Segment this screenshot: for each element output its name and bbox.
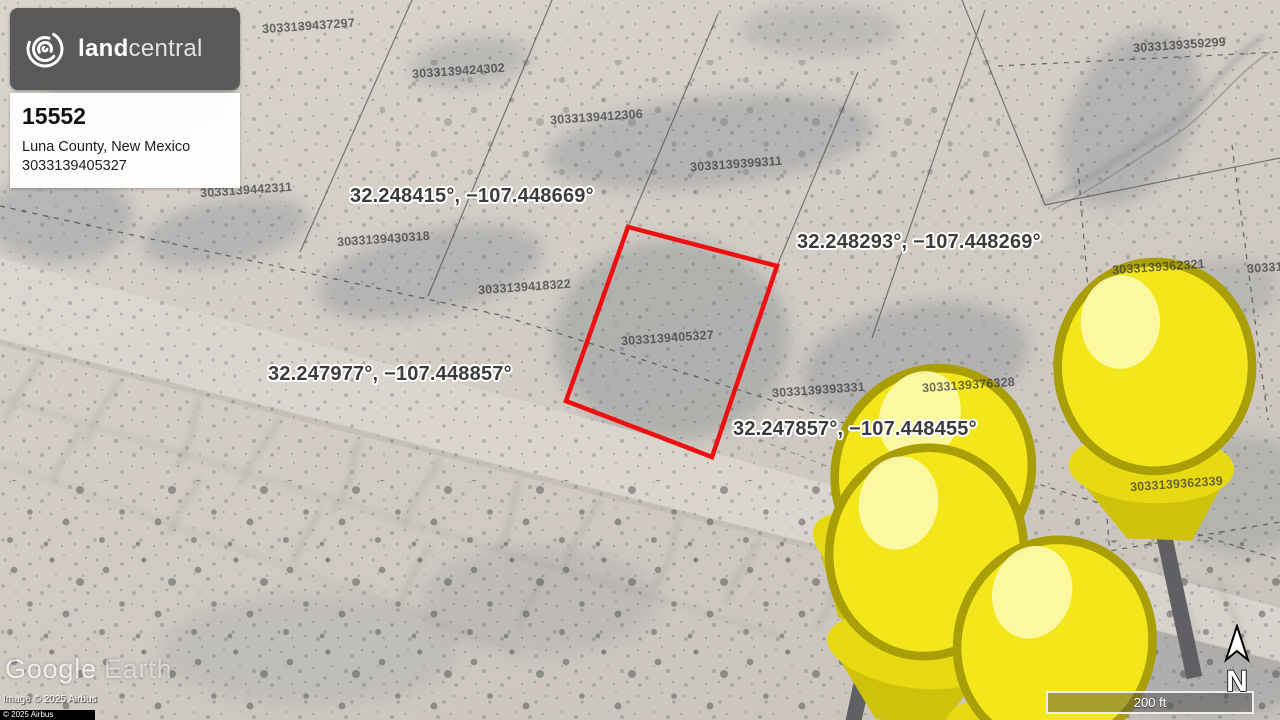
listing-id: 15552	[22, 103, 228, 130]
listing-location: Luna County, New Mexico	[22, 138, 228, 157]
coordinate-label-southwest: 32.247977°, −107.448857°	[268, 363, 512, 386]
north-label: N	[1226, 665, 1248, 698]
google-earth-watermark: GoogleEarth	[5, 654, 172, 685]
landcentral-spiral-icon	[22, 26, 68, 72]
listing-parcel-number: 3033139405327	[22, 157, 228, 176]
copyright-strip: © 2025 Airbus	[0, 710, 95, 720]
watermark-brand: Google	[5, 654, 97, 684]
map-canvas[interactable]: 3033139437297303313942430230331394123063…	[0, 0, 1280, 720]
scale-bar-label: 200 ft	[1134, 695, 1167, 710]
listing-card: landcentral 15552 Luna County, New Mexic…	[10, 8, 240, 188]
logo-word-central: central	[129, 35, 203, 62]
coordinate-label-southeast: 32.247857°, −107.448455°	[733, 418, 977, 441]
landcentral-wordmark: landcentral	[78, 35, 203, 63]
coordinate-label-northeast: 32.248293°, −107.448269°	[797, 231, 1041, 254]
listing-info-box: 15552 Luna County, New Mexico 3033139405…	[10, 93, 240, 188]
watermark-product: Earth	[104, 654, 173, 684]
landcentral-logo: landcentral	[10, 8, 240, 90]
logo-word-land: land	[78, 35, 129, 62]
imagery-copyright: Image © 2025 Airbus	[3, 694, 97, 705]
coordinate-label-northwest: 32.248415°, −107.448669°	[350, 185, 594, 208]
parcel-number-label: 30331394	[1247, 258, 1280, 276]
north-compass-icon: N	[1220, 624, 1254, 700]
